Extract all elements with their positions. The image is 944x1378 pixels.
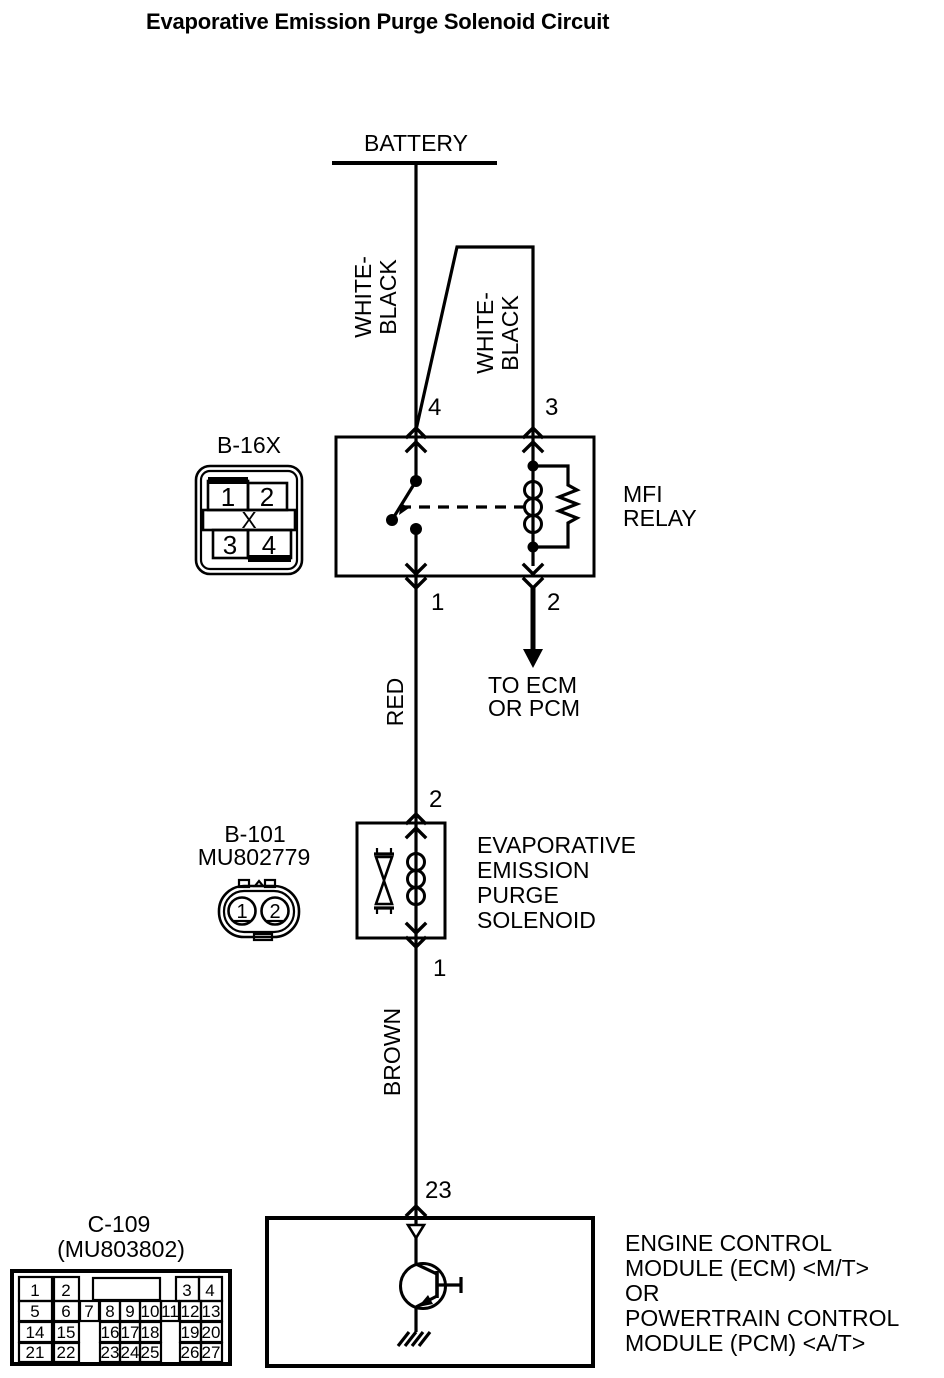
- ecm-name-line: MODULE (PCM) <A/T>: [625, 1330, 865, 1356]
- c109-pin-label: 21: [26, 1343, 45, 1362]
- c109-pin-label: 9: [125, 1302, 134, 1321]
- solenoid-name-label: EVAPORATIVE EMISSION PURGE SOLENOID: [477, 832, 636, 933]
- wire-color-label-white-black-1: WHITE- BLACK: [350, 256, 401, 338]
- c109-pin-label: 15: [57, 1323, 76, 1342]
- connector-c109-part-no: (MU803802): [57, 1236, 185, 1262]
- wire-color-text: BLACK: [375, 259, 401, 335]
- terminal-arrow-down-icon: [524, 565, 542, 574]
- wiring-diagram-canvas: Evaporative Emission Purge Solenoid Circ…: [0, 0, 944, 1378]
- solenoid-name-line: EVAPORATIVE: [477, 832, 636, 858]
- connector-outline-outer: [219, 886, 299, 937]
- c109-pin-label: 2: [61, 1281, 70, 1300]
- c109-pin-label: 13: [202, 1302, 221, 1321]
- relay-name-line2: RELAY: [623, 505, 697, 531]
- emitter-arrowhead-icon: [418, 1295, 433, 1307]
- valve-triangle-up: [376, 881, 392, 904]
- b101-pin-label: 1: [236, 901, 247, 923]
- ecm-pin-23-label: 23: [425, 1177, 452, 1204]
- wiring-diagram-page: Evaporative Emission Purge Solenoid Circ…: [0, 0, 944, 1378]
- c109-pin-label: 3: [182, 1281, 191, 1300]
- relay-pin-3-label: 3: [545, 394, 558, 421]
- ground-icon: [398, 1332, 430, 1346]
- transistor-symbol: [401, 1264, 462, 1333]
- ecm-name-line: OR: [625, 1280, 660, 1306]
- c109-pin-label: 27: [202, 1343, 221, 1362]
- wire-color-text: WHITE-: [472, 292, 498, 374]
- c109-pin-label: 20: [202, 1323, 221, 1342]
- c109-pin-label: 12: [181, 1302, 200, 1321]
- wire-color-text: WHITE-: [350, 256, 376, 338]
- b101-pin-label: 2: [269, 901, 280, 923]
- connector-c109-label: C-109: [88, 1211, 151, 1237]
- relay-switch-arm: [392, 481, 416, 520]
- c109-pin-label: 22: [57, 1343, 76, 1362]
- c109-pin-label: 16: [101, 1323, 120, 1342]
- c109-pin-label: 7: [84, 1302, 93, 1321]
- c109-pin-label: 14: [26, 1323, 45, 1342]
- c109-pin-label: 26: [181, 1343, 200, 1362]
- valve-triangle-down: [376, 857, 392, 880]
- c109-pin-label: 18: [141, 1323, 160, 1342]
- to-ecm-note-line2: OR PCM: [488, 695, 580, 721]
- b16x-key-label: X: [241, 507, 256, 533]
- ecm-box: [267, 1218, 593, 1366]
- solenoid-name-line: PURGE: [477, 882, 559, 908]
- ecm-name-line: MODULE (ECM) <M/T>: [625, 1255, 869, 1281]
- c109-pin-label: 23: [101, 1343, 120, 1362]
- c109-pin-label: 24: [121, 1343, 140, 1362]
- ecm-name-line: POWERTRAIN CONTROL: [625, 1305, 900, 1331]
- relay-pin-4-label: 4: [428, 394, 441, 421]
- c109-pin-label: 8: [105, 1302, 114, 1321]
- ecm-name-line: ENGINE CONTROL: [625, 1230, 832, 1256]
- wire-color-label-red: RED: [382, 678, 408, 727]
- b16x-pin-label: 2: [260, 482, 274, 512]
- relay-contact-dot: [386, 514, 398, 526]
- wire-color-label-white-black-2: WHITE- BLACK: [472, 292, 523, 374]
- c109-pin-label: 19: [181, 1323, 200, 1342]
- relay-contact-dot: [410, 523, 422, 535]
- relay-pin-2-label: 2: [547, 589, 560, 616]
- page-title: Evaporative Emission Purge Solenoid Circ…: [146, 9, 610, 34]
- connector-b16x: B-16X 1 2 X 3 4: [196, 432, 302, 574]
- solenoid-name-line: EMISSION: [477, 857, 589, 883]
- connector-b101-part-no: MU802779: [198, 844, 311, 870]
- wire-color-text: BLACK: [497, 295, 523, 371]
- connector-b101: B-101 MU802779 1 2: [198, 821, 311, 940]
- solenoid-box: [357, 823, 445, 938]
- ecm-name-label: ENGINE CONTROL MODULE (ECM) <M/T> OR POW…: [625, 1230, 900, 1356]
- c109-pin-label: 5: [30, 1302, 39, 1321]
- relay-switch-symbol: [386, 475, 524, 535]
- relay-resistor-symbol: [533, 466, 577, 547]
- solenoid-pin-1-label: 1: [433, 955, 446, 982]
- connector-outline-inner: [224, 891, 294, 932]
- c109-pin-label: 6: [61, 1302, 70, 1321]
- battery-label: BATTERY: [364, 130, 468, 156]
- c109-pin-label: 25: [141, 1343, 160, 1362]
- c109-pin-label: 11: [161, 1302, 179, 1321]
- c109-pin-label: 4: [205, 1281, 214, 1300]
- solenoid-pin-2-label: 2: [429, 786, 442, 813]
- c109-pin-label: 1: [30, 1281, 39, 1300]
- b16x-pin-label: 1: [221, 482, 235, 512]
- b16x-pin-label: 3: [223, 530, 237, 560]
- to-ecm-arrowhead-icon: [523, 649, 543, 668]
- connector-c109: C-109 (MU803802) 1 2 3 4 5 6 7 8 9 10 11…: [12, 1211, 230, 1364]
- wire-color-label-brown: BROWN: [379, 1008, 405, 1096]
- c109-blank-cell: [93, 1278, 160, 1300]
- c109-pin-label: 17: [121, 1323, 140, 1342]
- female-terminal-icon: [408, 1225, 424, 1238]
- c109-pin-label: 10: [141, 1302, 160, 1321]
- solenoid-valve-symbol: [374, 848, 394, 914]
- solenoid-name-line: SOLENOID: [477, 907, 596, 933]
- relay-name-line1: MFI: [623, 481, 663, 507]
- b16x-pin-label: 4: [262, 530, 276, 560]
- relay-pin-1-label: 1: [431, 589, 444, 616]
- connector-b16x-label: B-16X: [217, 432, 281, 458]
